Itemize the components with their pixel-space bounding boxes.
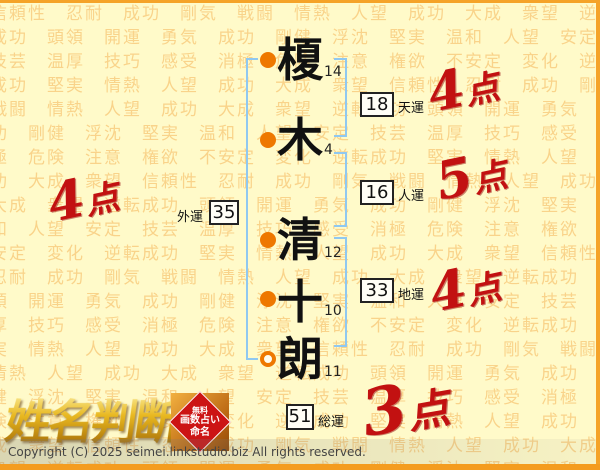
frame-border-right <box>596 0 600 470</box>
score-number: 5 <box>430 145 478 212</box>
frame-border-top <box>0 0 600 3</box>
chiun-score: 4点 <box>425 255 504 320</box>
bracket-gaiun <box>246 58 258 360</box>
stroke-count: 14 <box>324 64 342 80</box>
stroke-count: 11 <box>324 364 342 380</box>
tenun-label: 天運 <box>398 97 424 116</box>
jinun-label: 人運 <box>398 185 424 204</box>
footer: Copyright (C) 2025 seimei.linkstudio.biz… <box>0 439 600 464</box>
seal-line3: 命名 <box>190 427 210 439</box>
seal-line2: 画数占い <box>180 415 220 427</box>
bracket-jinun <box>334 152 347 227</box>
gaiun-value-box: 35 <box>209 200 239 225</box>
score-number: 4 <box>42 167 90 234</box>
gaiun-score: 4点 <box>43 165 122 230</box>
seal-line1: 無料 <box>192 406 208 415</box>
stroke-count: 12 <box>324 245 342 261</box>
char-bullet-icon <box>260 132 276 148</box>
souun-label: 総運 <box>318 411 344 430</box>
souun-value-box: 51 <box>286 404 314 430</box>
stroke-count: 10 <box>324 303 342 319</box>
souun-score: 3点 <box>357 369 453 447</box>
score-unit: 点 <box>461 67 503 113</box>
tenun-score: 4点 <box>423 55 502 120</box>
char-bullet-hollow-icon <box>260 351 276 367</box>
tenun-value-box: 18 <box>360 92 394 117</box>
jinun-value-box: 16 <box>360 180 394 205</box>
name-character: 朗 <box>277 336 323 382</box>
score-unit: 点 <box>469 155 511 201</box>
name-character: 榎 <box>277 37 323 83</box>
score-unit: 点 <box>463 267 505 313</box>
name-character: 清 <box>277 217 323 263</box>
chiun-value-box: 33 <box>360 278 394 303</box>
chiun-label: 地運 <box>398 284 424 303</box>
name-character: 木 <box>277 117 323 163</box>
gaiun-label: 外運 <box>177 206 203 225</box>
char-bullet-icon <box>260 232 276 248</box>
jinun-score: 5点 <box>431 143 510 208</box>
stroke-count: 4 <box>324 142 333 158</box>
score-number: 4 <box>424 257 472 324</box>
score-number: 4 <box>422 57 470 124</box>
frame-border-bottom <box>0 464 600 470</box>
score-unit: 点 <box>81 177 123 223</box>
char-bullet-icon <box>260 52 276 68</box>
copyright-text: Copyright (C) 2025 seimei.linkstudio.biz… <box>0 445 366 459</box>
seimei-result-page: 信頼性 忍耐 成功 剛気 戦闘 情熱 人望 成功 大成 衆望 逆転成功 頭領 開… <box>0 0 600 470</box>
char-bullet-icon <box>260 291 276 307</box>
score-unit: 点 <box>403 383 453 439</box>
name-character: 十 <box>277 279 323 325</box>
